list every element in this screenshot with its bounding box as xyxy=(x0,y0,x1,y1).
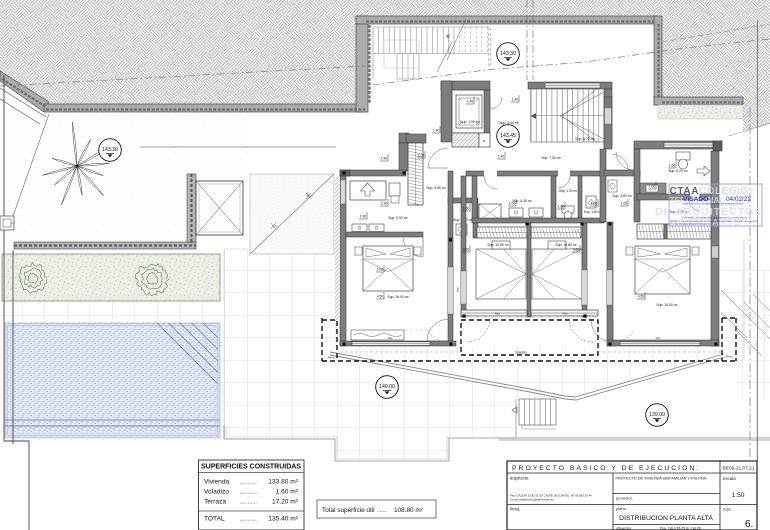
svg-text:situación.: situación. xyxy=(616,527,632,530)
svg-text:Terraza: Terraza xyxy=(204,499,226,506)
svg-text:Total superficie útil: Total superficie útil xyxy=(322,507,375,514)
svg-text:SUPERFICIES CONSTRUIDAS: SUPERFICIES CONSTRUIDAS xyxy=(201,464,301,471)
svg-text:1.60 m²: 1.60 m² xyxy=(276,489,299,496)
svg-text:Sup: 3.60 m²: Sup: 3.60 m² xyxy=(612,194,632,198)
svg-text:promotor.: promotor. xyxy=(616,496,633,501)
svg-text:Sup: 1.80 m²: Sup: 1.80 m² xyxy=(584,210,602,214)
svg-text:Sup: 1.90 m²: Sup: 1.90 m² xyxy=(559,189,577,193)
svg-text:Sup: 7.50 m²: Sup: 7.50 m² xyxy=(541,156,561,160)
svg-text:...........: ........... xyxy=(240,500,257,506)
svg-text:4.50: 4.50 xyxy=(377,295,384,299)
svg-text:PROYECTO BASICO Y DE EJECUCION: PROYECTO BASICO Y DE EJECUCION. xyxy=(512,465,700,472)
svg-text:Psa. CALETA 25-B, CALPE: Psa. CALETA 25-B, CALPE xyxy=(660,527,702,530)
svg-text:Alero: Alero xyxy=(725,354,732,358)
svg-text:Sup: 5.20 m²: Sup: 5.20 m² xyxy=(668,169,688,173)
svg-text:4.50: 4.50 xyxy=(638,295,645,299)
svg-text:Fijo: Fijo xyxy=(388,336,393,340)
svg-text:Sup: 5.55 m²: Sup: 5.55 m² xyxy=(426,186,446,190)
svg-text:1:50: 1:50 xyxy=(732,492,745,499)
svg-text:1.40: 1.40 xyxy=(467,100,474,104)
svg-text:1.00: 1.00 xyxy=(509,202,516,206)
svg-text:Sup: 16.00 m²: Sup: 16.00 m² xyxy=(387,295,409,299)
svg-text:140.00: 140.00 xyxy=(379,384,395,390)
svg-text:DISTRIBUCION PLANTA ALTA: DISTRIBUCION PLANTA ALTA xyxy=(619,515,713,522)
svg-text:1.40: 1.40 xyxy=(433,129,440,133)
svg-text:e-mail: pintadoyrico@telefonic: e-mail: pintadoyrico@telefonica.net xyxy=(510,498,554,502)
svg-text:VISADO SEGUN LO ESTABLECIDO EN: VISADO SEGUN LO ESTABLECIDO EN LA NORMAT… xyxy=(683,203,744,206)
svg-text:6.: 6. xyxy=(745,519,753,530)
svg-text:1.05: 1.05 xyxy=(418,154,425,158)
svg-text:1.00: 1.00 xyxy=(621,202,628,206)
svg-text:Fijo: Fijo xyxy=(563,312,568,316)
svg-text:Sup: 5.35 m²: Sup: 5.35 m² xyxy=(512,199,532,203)
svg-text:...........: ........... xyxy=(240,517,257,523)
svg-text:1.40: 1.40 xyxy=(498,155,505,159)
svg-text:BE09-21.07.21: BE09-21.07.21 xyxy=(723,466,755,472)
svg-text:ESTE VISADO NO GARANTIZA LOS E: ESTE VISADO NO GARANTIZA LOS EXTREMOS NO… xyxy=(682,217,748,220)
svg-text:1.90: 1.90 xyxy=(381,157,388,161)
svg-text:Sup: 10.80 m²: Sup: 10.80 m² xyxy=(555,243,577,247)
svg-text:1.50: 1.50 xyxy=(463,207,470,211)
svg-text:VISADO: VISADO xyxy=(683,196,708,203)
svg-text:1.60: 1.60 xyxy=(591,202,598,206)
svg-text:Fijo: Fijo xyxy=(656,336,661,340)
svg-text:arquitecto.: arquitecto. xyxy=(510,476,530,481)
svg-text:Sup: 1.95 m²: Sup: 1.95 m² xyxy=(460,120,480,124)
svg-text:Sup: 10.80 m²: Sup: 10.80 m² xyxy=(487,243,509,247)
svg-text:hoja.: hoja. xyxy=(723,507,732,512)
svg-text:143.45: 143.45 xyxy=(500,133,516,139)
svg-text:plano.: plano. xyxy=(616,506,627,511)
svg-text:Fijo: Fijo xyxy=(495,312,500,316)
svg-text:1.60: 1.60 xyxy=(649,185,656,189)
svg-text:Sup: 6.70 m²: Sup: 6.70 m² xyxy=(575,137,595,141)
svg-text:Sup: 5.90 m²: Sup: 5.90 m² xyxy=(388,216,408,220)
svg-text:escala: escala xyxy=(723,476,736,481)
svg-text:Voladizo: Voladizo xyxy=(515,350,527,354)
svg-text:1.40: 1.40 xyxy=(512,98,519,102)
svg-text:3.60: 3.60 xyxy=(573,248,580,252)
svg-text:133.80 m²: 133.80 m² xyxy=(268,479,298,486)
svg-text:1.90: 1.90 xyxy=(381,202,388,206)
svg-text:1.60: 1.60 xyxy=(558,205,565,209)
svg-text:Voladizo: Voladizo xyxy=(204,489,229,496)
svg-text:PROYECTO DE VIVIENDA UNIFAMILI: PROYECTO DE VIVIENDA UNIFAMILIAR Y PISCI… xyxy=(616,477,708,481)
svg-text:SEGUN LO DISPUESTO EN EL ART.: SEGUN LO DISPUESTO EN EL ART. 13.2 RD 10… xyxy=(670,220,758,223)
svg-text:...: ... xyxy=(712,197,716,203)
svg-text:1.90: 1.90 xyxy=(360,215,367,219)
svg-text:Alero: Alero xyxy=(327,355,334,359)
svg-text:...........: ........... xyxy=(240,490,257,496)
svg-text:04/02/22: 04/02/22 xyxy=(726,196,751,203)
svg-text:143.30: 143.30 xyxy=(102,147,118,153)
svg-text:Fijo: Fijo xyxy=(456,288,460,293)
svg-text:3.60: 3.60 xyxy=(463,248,470,252)
svg-text:135.40 m²: 135.40 m² xyxy=(268,516,298,523)
svg-text:.......: ....... xyxy=(377,508,387,514)
svg-text:139.00: 139.00 xyxy=(649,412,665,418)
svg-text:1.00: 1.00 xyxy=(377,268,384,272)
svg-text:1.60: 1.60 xyxy=(669,164,676,168)
svg-text:17.20 m²: 17.20 m² xyxy=(272,499,299,506)
svg-text:143.30: 143.30 xyxy=(500,51,516,57)
svg-text:Vivienda: Vivienda xyxy=(204,479,230,486)
svg-text:Sup: 16.00 m²: Sup: 16.00 m² xyxy=(656,303,678,307)
svg-text:108.80 m²: 108.80 m² xyxy=(394,507,423,514)
svg-text:...........: ........... xyxy=(240,480,257,486)
svg-text:TOTAL: TOTAL xyxy=(204,516,225,523)
svg-text:firma.: firma. xyxy=(510,507,520,512)
